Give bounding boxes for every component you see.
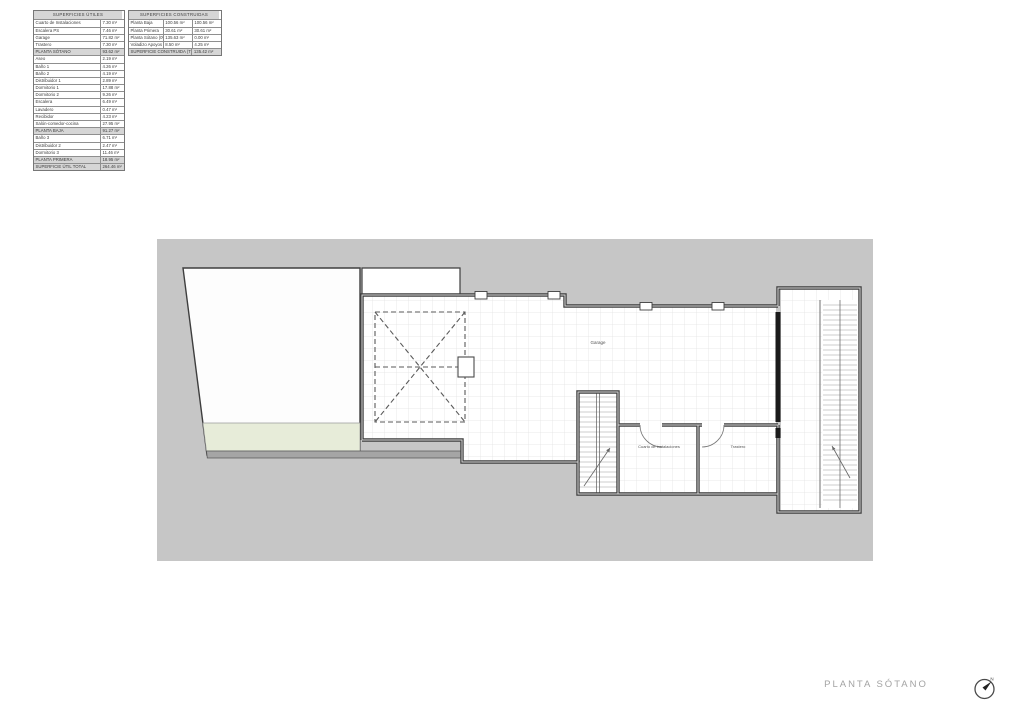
row-label: Escalera PS bbox=[34, 27, 101, 34]
green-strip bbox=[203, 423, 360, 451]
table-row: SUPERFICIE CONSTRUIDA (TOTAL)135.42 m² bbox=[129, 48, 221, 55]
row-value: 27.95 m² bbox=[101, 120, 124, 127]
row-value: 4.19 m² bbox=[101, 70, 124, 77]
row-label: Trastero bbox=[34, 41, 101, 48]
utiles-table-body: Cuarto de Instalaciones7.30 m²Escalera P… bbox=[34, 19, 124, 170]
row-value: 2.47 m² bbox=[101, 142, 124, 149]
table-row: Dormitorio 29.26 m² bbox=[34, 91, 124, 98]
table-row: Lavadero0.47 m² bbox=[34, 106, 124, 113]
row-label: Baño 3 bbox=[34, 134, 101, 141]
row-value: 6.71 m² bbox=[101, 134, 124, 141]
central-stairwell bbox=[578, 392, 618, 494]
row-label: Garage bbox=[34, 34, 101, 41]
row-value: 71.82 m² bbox=[101, 34, 124, 41]
row-value: 2.19 m² bbox=[101, 55, 124, 62]
table-row: Planta Baja100.56 m²100.56 m² bbox=[129, 19, 221, 26]
row-label: Planta Sótano (0%) bbox=[129, 34, 164, 41]
north-arrow-icon: N bbox=[972, 675, 998, 701]
north-letter: N bbox=[990, 677, 993, 682]
row-value: 17.88 m² bbox=[101, 84, 124, 91]
row-label: Lavadero bbox=[34, 106, 101, 113]
table-row: Cuarto de Instalaciones7.30 m² bbox=[34, 19, 124, 26]
row-value-computed: 100.56 m² bbox=[193, 19, 221, 26]
row-label: Escalera bbox=[34, 98, 101, 105]
row-value: 93.62 m² bbox=[101, 48, 124, 55]
row-label: Voladizo Apoyos (50%) bbox=[129, 41, 164, 48]
utiles-table-title: SUPERFICIES ÚTILES bbox=[34, 11, 122, 19]
row-value: 0.47 m² bbox=[101, 106, 124, 113]
table-row: Escalera PS7.46 m² bbox=[34, 27, 124, 34]
row-value: 2.89 m² bbox=[101, 77, 124, 84]
construidas-table-body: Planta Baja100.56 m²100.56 m²Planta Prim… bbox=[129, 19, 221, 55]
row-value: 6.49 m² bbox=[101, 98, 124, 105]
superficies-utiles-table: SUPERFICIES ÚTILES Cuarto de Instalacion… bbox=[33, 10, 125, 171]
row-label: Dormitorio 2 bbox=[34, 91, 101, 98]
row-label: Distribuidor 1 bbox=[34, 77, 101, 84]
table-row: Dormitorio 117.88 m² bbox=[34, 84, 124, 91]
cuarto-instalaciones-room-label: Cuarto de instalaciones bbox=[638, 444, 680, 449]
table-row: Aseo2.19 m² bbox=[34, 55, 124, 62]
drawing-sheet: SUPERFICIES ÚTILES Cuarto de Instalacion… bbox=[0, 0, 1030, 704]
row-label: Cuarto de Instalaciones bbox=[34, 19, 101, 26]
table-row: PLANTA PRIMERA18.95 m² bbox=[34, 156, 124, 163]
trastero-room-label: Trastero bbox=[731, 444, 747, 449]
row-label: SUPERFICIE ÚTIL TOTAL bbox=[34, 163, 101, 170]
row-value-built: 135.63 m² bbox=[164, 34, 193, 41]
table-row: Escalera6.49 m² bbox=[34, 98, 124, 105]
utiles-table-header: SUPERFICIES ÚTILES bbox=[34, 11, 124, 19]
row-value: 7.46 m² bbox=[101, 27, 124, 34]
row-label: Planta Baja bbox=[129, 19, 164, 26]
row-label: PLANTA SÓTANO bbox=[34, 48, 101, 55]
row-label: Baño 2 bbox=[34, 70, 101, 77]
table-row: Baño 24.19 m² bbox=[34, 70, 124, 77]
row-label: Dormitorio 3 bbox=[34, 149, 101, 156]
table-row: Trastero7.30 m² bbox=[34, 41, 124, 48]
platform-handle bbox=[458, 357, 474, 377]
table-row: Planta Primera30.61 m²30.61 m² bbox=[129, 27, 221, 34]
sheet-title: PLANTA SÓTANO bbox=[814, 679, 938, 690]
row-label: Salón-comedor-cocina bbox=[34, 120, 101, 127]
floor-plan: Garage Cuarto de instalaciones Trastero bbox=[157, 239, 873, 561]
row-label: Dormitorio 1 bbox=[34, 84, 101, 91]
row-value: 4.23 m² bbox=[101, 113, 124, 120]
row-label: PLANTA PRIMERA bbox=[34, 156, 101, 163]
table-row: Distribuidor 22.47 m² bbox=[34, 142, 124, 149]
table-row: PLANTA BAJA91.27 m² bbox=[34, 127, 124, 134]
table-row: Baño 36.71 m² bbox=[34, 134, 124, 141]
table-row: Salón-comedor-cocina27.95 m² bbox=[34, 120, 124, 127]
row-value: 91.27 m² bbox=[101, 127, 124, 134]
table-row: Baño 14.26 m² bbox=[34, 63, 124, 70]
row-label: PLANTA BAJA bbox=[34, 127, 101, 134]
row-value-built: 100.56 m² bbox=[164, 19, 193, 26]
table-row: PLANTA SÓTANO93.62 m² bbox=[34, 48, 124, 55]
row-value: 4.26 m² bbox=[101, 63, 124, 70]
superficies-construidas-table: SUPERFICIES CONSTRUIDAS Planta Baja100.5… bbox=[128, 10, 222, 56]
table-row: Planta Sótano (0%)135.63 m²0.00 m² bbox=[129, 34, 221, 41]
structural-wall-fill bbox=[776, 312, 781, 422]
row-label: Distribuidor 2 bbox=[34, 142, 101, 149]
row-label: Recibidor bbox=[34, 113, 101, 120]
row-label: Aseo bbox=[34, 55, 101, 62]
row-value: 11.46 m² bbox=[101, 149, 124, 156]
retaining-wall bbox=[207, 451, 463, 458]
construidas-table-title: SUPERFICIES CONSTRUIDAS bbox=[129, 11, 219, 19]
table-row: Dormitorio 311.46 m² bbox=[34, 149, 124, 156]
construidas-table-header: SUPERFICIES CONSTRUIDAS bbox=[129, 11, 221, 19]
row-value-built: 8.50 m² bbox=[164, 41, 193, 48]
row-value-computed: 4.25 m² bbox=[193, 41, 221, 48]
row-value-computed: 30.61 m² bbox=[193, 27, 221, 34]
row-value: 18.95 m² bbox=[101, 156, 124, 163]
table-row: Garage71.82 m² bbox=[34, 34, 124, 41]
garage-room-label: Garage bbox=[590, 340, 606, 345]
row-value: 7.30 m² bbox=[101, 41, 124, 48]
table-row: Distribuidor 12.89 m² bbox=[34, 77, 124, 84]
row-value: 9.26 m² bbox=[101, 91, 124, 98]
table-row: SUPERFICIE ÚTIL TOTAL264.46 m² bbox=[34, 163, 124, 170]
row-value: 264.46 m² bbox=[101, 163, 124, 170]
table-row: Recibidor4.23 m² bbox=[34, 113, 124, 120]
row-value-computed: 0.00 m² bbox=[193, 34, 221, 41]
table-row: Voladizo Apoyos (50%)8.50 m²4.25 m² bbox=[129, 41, 221, 48]
row-value: 7.30 m² bbox=[101, 19, 124, 26]
row-label: SUPERFICIE CONSTRUIDA (TOTAL) bbox=[129, 48, 192, 55]
right-wing-stairs bbox=[820, 300, 858, 508]
upper-wall-chamber bbox=[362, 268, 460, 295]
row-label: Planta Primera bbox=[129, 27, 164, 34]
row-label: Baño 1 bbox=[34, 63, 101, 70]
floor-plan-svg: Garage Cuarto de instalaciones Trastero bbox=[157, 239, 873, 561]
row-value: 135.42 m² bbox=[192, 48, 221, 55]
row-value-built: 30.61 m² bbox=[164, 27, 193, 34]
